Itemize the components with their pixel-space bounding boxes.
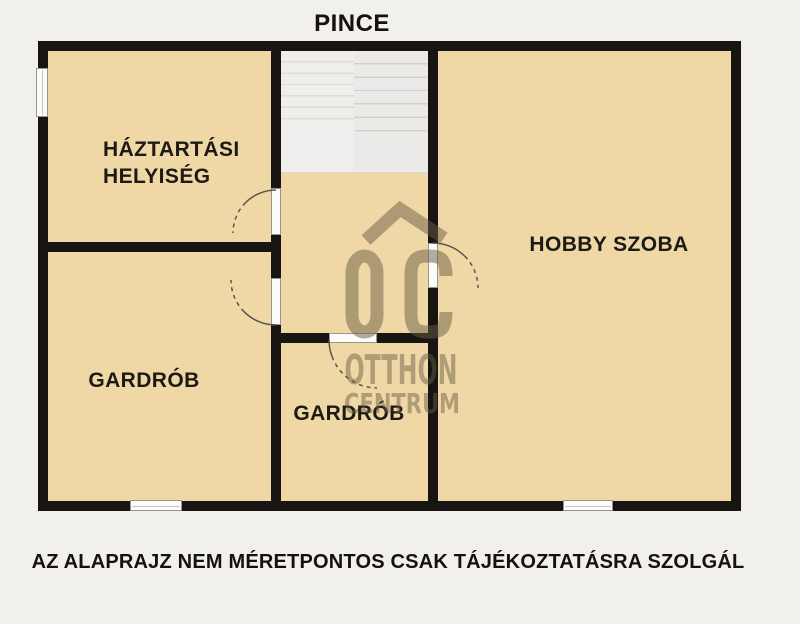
wall-mid-left-upper [271, 51, 281, 188]
door-leaf-hobby [428, 243, 438, 288]
room-label-haztartasi-line1: HÁZTARTÁSI [103, 136, 240, 163]
wall-mid-right-upper [428, 51, 438, 243]
room-label-gardrob-left: GARDRÓB [88, 369, 199, 393]
wall-mid-left-between-doors [271, 235, 281, 278]
wall-hall-bottom-left [281, 333, 329, 343]
staircase [281, 51, 428, 173]
wall-mid-right-lower [428, 288, 438, 501]
stair-treads-left [281, 51, 354, 129]
wall-left-horizontal [48, 242, 271, 252]
disclaimer-text: AZ ALAPRAJZ NEM MÉRETPONTOS CSAK TÁJÉKOZ… [32, 551, 745, 574]
wall-outer-top [38, 41, 741, 51]
stair-flight-right [354, 51, 428, 172]
room-label-hobby: HOBBY SZOBA [529, 233, 688, 257]
window-bottom-left [130, 500, 182, 511]
window-bottom-right [563, 500, 613, 511]
page-title: PINCE [314, 10, 390, 38]
stair-flight-left [281, 51, 354, 172]
door-leaf-gardrob-middle [329, 333, 377, 343]
door-leaf-gardrob-left [271, 278, 281, 325]
wall-hall-bottom-right [377, 333, 428, 343]
floor-plan-page: PINCE [0, 0, 800, 624]
room-label-gardrob-middle: GARDRÓB [293, 402, 404, 426]
stair-treads-right [354, 51, 428, 143]
window-left-wall [36, 68, 48, 117]
room-label-haztartasi: HÁZTARTÁSI HELYISÉG [103, 136, 240, 190]
door-leaf-haztartasi [271, 188, 281, 235]
wall-mid-left-lower [271, 325, 281, 501]
room-label-haztartasi-line2: HELYISÉG [103, 163, 240, 190]
wall-outer-right [731, 41, 741, 511]
